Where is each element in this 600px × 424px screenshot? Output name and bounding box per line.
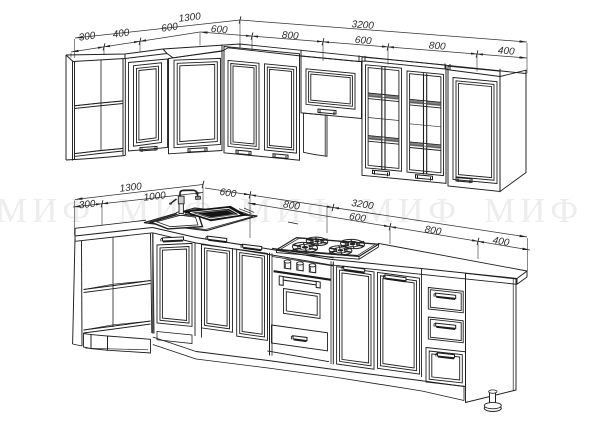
svg-text:400: 400 — [497, 45, 515, 57]
svg-text:800: 800 — [428, 40, 446, 52]
svg-text:300: 300 — [78, 199, 96, 212]
svg-text:600: 600 — [354, 35, 372, 47]
svg-text:800: 800 — [281, 30, 299, 42]
svg-text:600: 600 — [210, 24, 228, 36]
svg-text:3200: 3200 — [351, 19, 374, 32]
svg-text:МИФ: МИФ — [484, 191, 583, 230]
